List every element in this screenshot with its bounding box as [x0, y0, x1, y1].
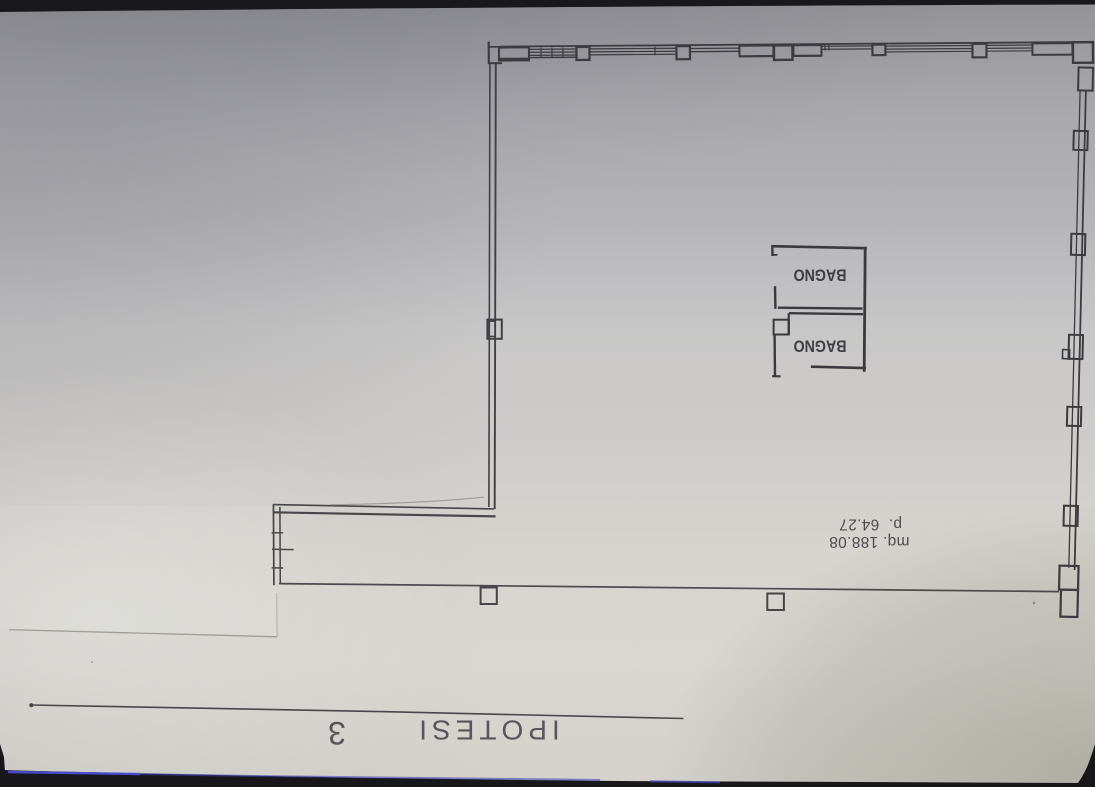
svg-text:BAGNO: BAGNO [794, 266, 847, 285]
svg-text:3: 3 [328, 715, 346, 751]
svg-text:IPOTESI: IPOTESI [414, 715, 559, 746]
svg-text:mq. 188.08: mq. 188.08 [829, 533, 910, 550]
svg-text:BAGNO: BAGNO [794, 337, 847, 356]
svg-text:p. 64.27: p. 64.27 [839, 516, 902, 533]
